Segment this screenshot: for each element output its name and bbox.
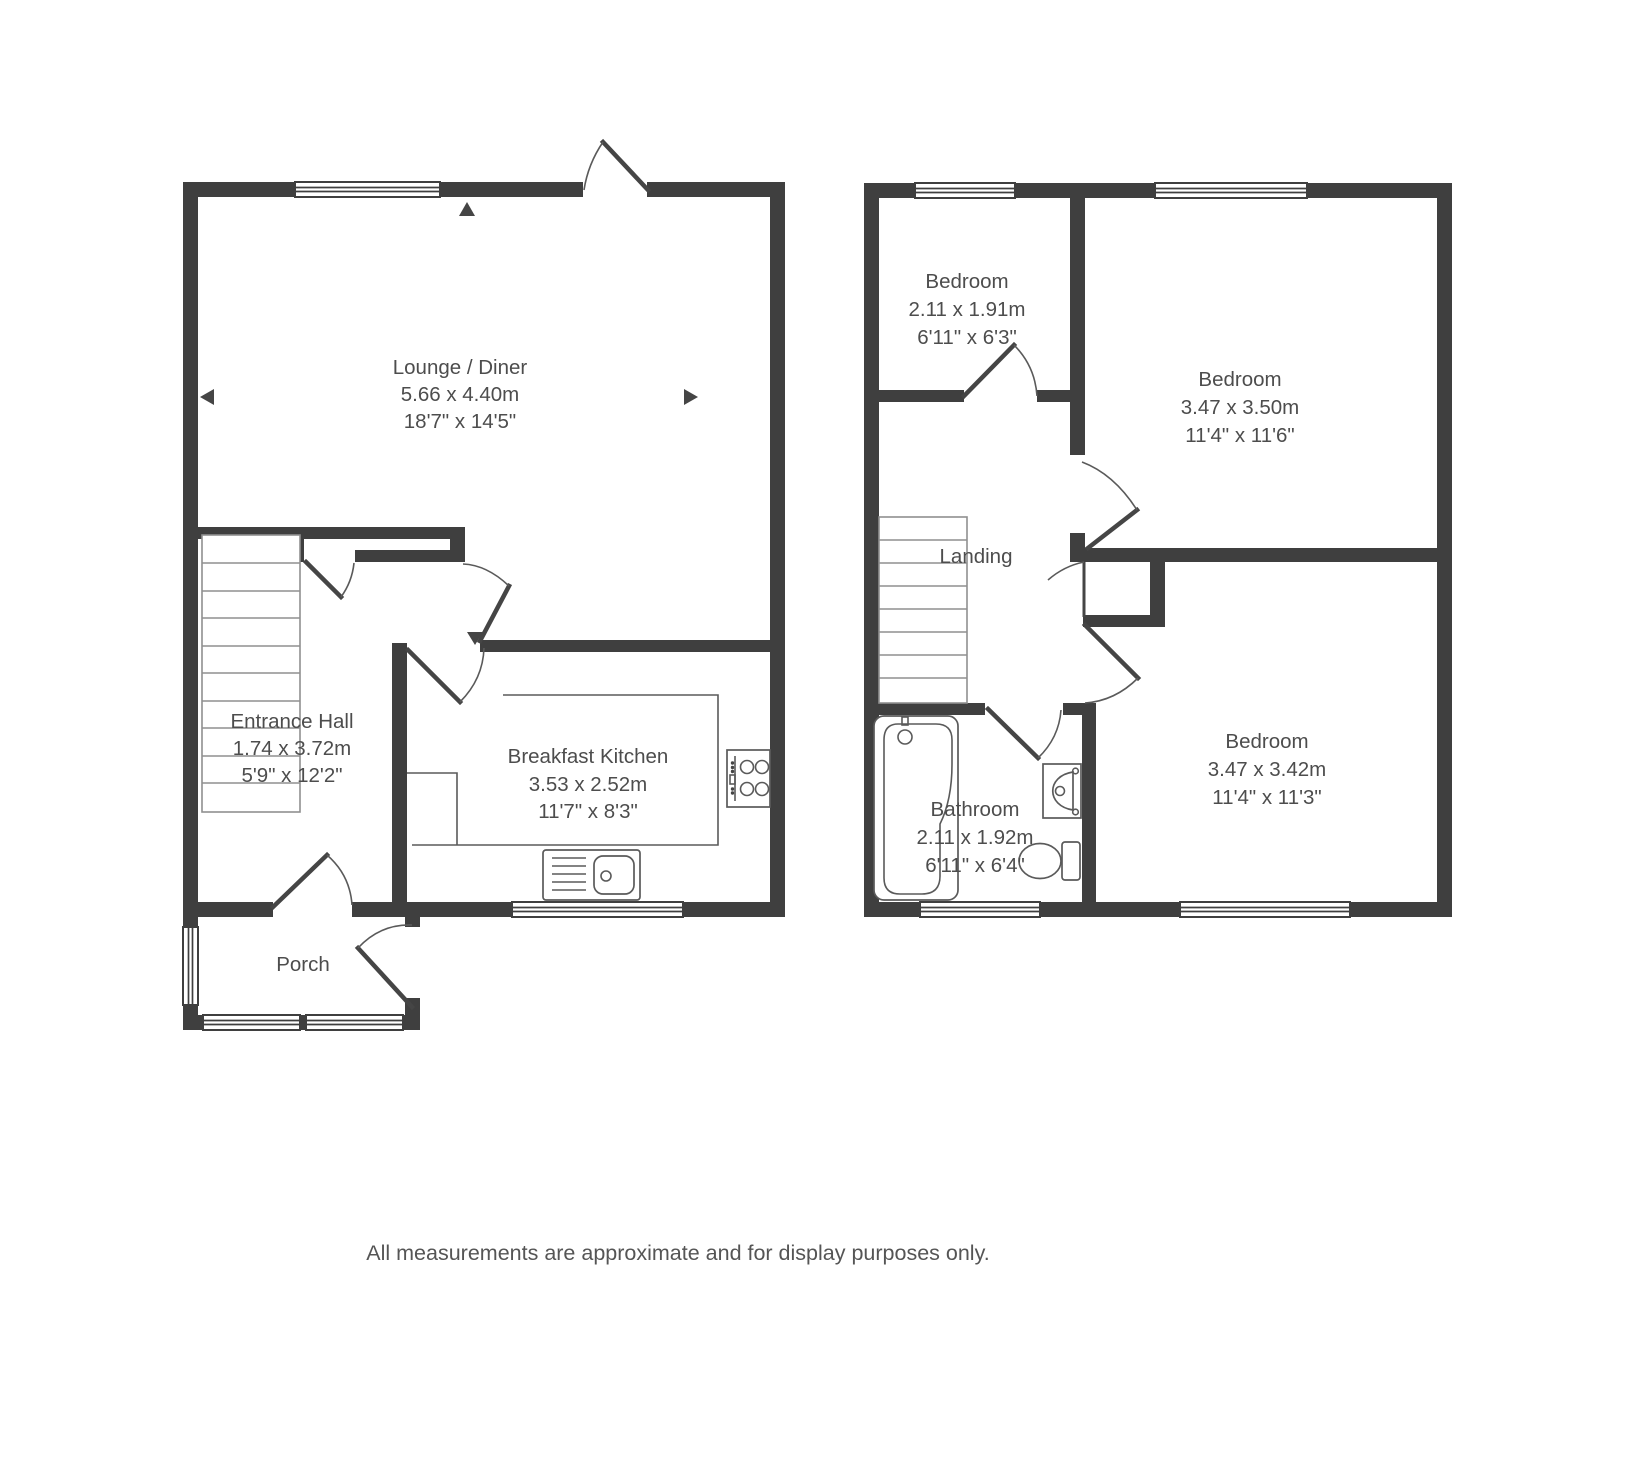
- wall-segment: [480, 640, 770, 652]
- door-icon: [306, 562, 354, 597]
- bathroom-label: Bathroom: [931, 798, 1020, 821]
- wall-segment: [183, 182, 785, 197]
- bedroom-rear-imperial: 11'4" x 11'6": [1185, 424, 1294, 447]
- lounge-metric: 5.66 x 4.40m: [401, 383, 520, 406]
- wall-segment: [1070, 548, 1452, 562]
- wall-segment: [1083, 615, 1150, 627]
- wall-segment: [870, 390, 964, 402]
- sink-icon: [543, 850, 640, 900]
- landing-label: Landing: [940, 545, 1013, 568]
- window-icon: [295, 182, 440, 197]
- lounge-imperial: 18'7" x 14'5": [404, 410, 516, 433]
- bedroom-small-imperial: 6'11" x 6'3": [917, 326, 1017, 349]
- floorplan-drawing: Lounge / Diner 5.66 x 4.40m 18'7" x 14'5…: [0, 0, 1640, 1458]
- bedroom-small-label: Bedroom: [925, 270, 1008, 293]
- arrow-left-icon: [200, 389, 214, 405]
- door-opening: [583, 182, 647, 197]
- window-icon: [183, 927, 198, 1005]
- kitchen-label: Breakfast Kitchen: [508, 745, 669, 768]
- bedroom-front-metric: 3.47 x 3.42m: [1208, 758, 1327, 781]
- window-icon: [920, 902, 1040, 917]
- bathroom-imperial: 6'11" x 6'4": [925, 854, 1025, 877]
- bedroom-front-label: Bedroom: [1225, 730, 1308, 753]
- wall-segment: [355, 550, 465, 562]
- bedroom-front-imperial: 11'4" x 11'3": [1212, 786, 1321, 809]
- disclaimer-text: All measurements are approximate and for…: [366, 1241, 989, 1265]
- hall-metric: 1.74 x 3.72m: [233, 737, 352, 760]
- door-icon: [964, 345, 1037, 396]
- wall-segment: [392, 643, 407, 902]
- room-labels: Bedroom 2.11 x 1.91m 6'11" x 6'3" Bedroo…: [909, 270, 1327, 877]
- window-icon: [306, 1015, 403, 1030]
- window-icon: [915, 183, 1015, 198]
- door-icon: [1085, 625, 1138, 703]
- wall-segment: [1070, 183, 1085, 455]
- wall-segment: [1070, 533, 1085, 548]
- hall-label: Entrance Hall: [230, 710, 353, 733]
- door-icon: [358, 925, 412, 1007]
- bathroom-metric: 2.11 x 1.92m: [917, 826, 1034, 849]
- wall-segment: [870, 703, 985, 715]
- lounge-label: Lounge / Diner: [393, 356, 528, 379]
- window-icon: [1180, 902, 1350, 917]
- window-icon: [512, 902, 683, 917]
- door-icon: [1082, 462, 1137, 548]
- window-icon: [203, 1015, 300, 1030]
- first-floor-plan: Bedroom 2.11 x 1.91m 6'11" x 6'3" Bedroo…: [864, 183, 1452, 917]
- hob-icon: [727, 750, 770, 807]
- wall-segment: [1082, 703, 1096, 902]
- floorplan-canvas: Lounge / Diner 5.66 x 4.40m 18'7" x 14'5…: [0, 0, 1640, 1458]
- bedroom-rear-metric: 3.47 x 3.50m: [1181, 396, 1300, 419]
- wall-segment: [1037, 390, 1070, 402]
- door-icon: [988, 709, 1061, 758]
- ground-floor-plan: Lounge / Diner 5.66 x 4.40m 18'7" x 14'5…: [183, 142, 785, 1030]
- hall-imperial: 5'9" x 12'2": [241, 764, 342, 787]
- porch-label: Porch: [276, 953, 330, 976]
- wall-segment: [1150, 562, 1165, 627]
- window-icon: [1155, 183, 1307, 198]
- door-icon: [1048, 562, 1084, 617]
- door-opening: [273, 902, 352, 917]
- kitchen-imperial: 11'7" x 8'3": [538, 800, 638, 823]
- arrow-up-icon: [459, 202, 475, 216]
- door-icon: [408, 648, 484, 702]
- bedroom-small-metric: 2.11 x 1.91m: [909, 298, 1026, 321]
- wall-segment: [770, 182, 785, 917]
- door-icon: [273, 855, 352, 907]
- door-icon: [463, 564, 509, 641]
- kitchen-metric: 3.53 x 2.52m: [529, 773, 648, 796]
- bedroom-rear-label: Bedroom: [1198, 368, 1281, 391]
- basin-icon: [1043, 764, 1081, 818]
- arrow-right-icon: [684, 389, 698, 405]
